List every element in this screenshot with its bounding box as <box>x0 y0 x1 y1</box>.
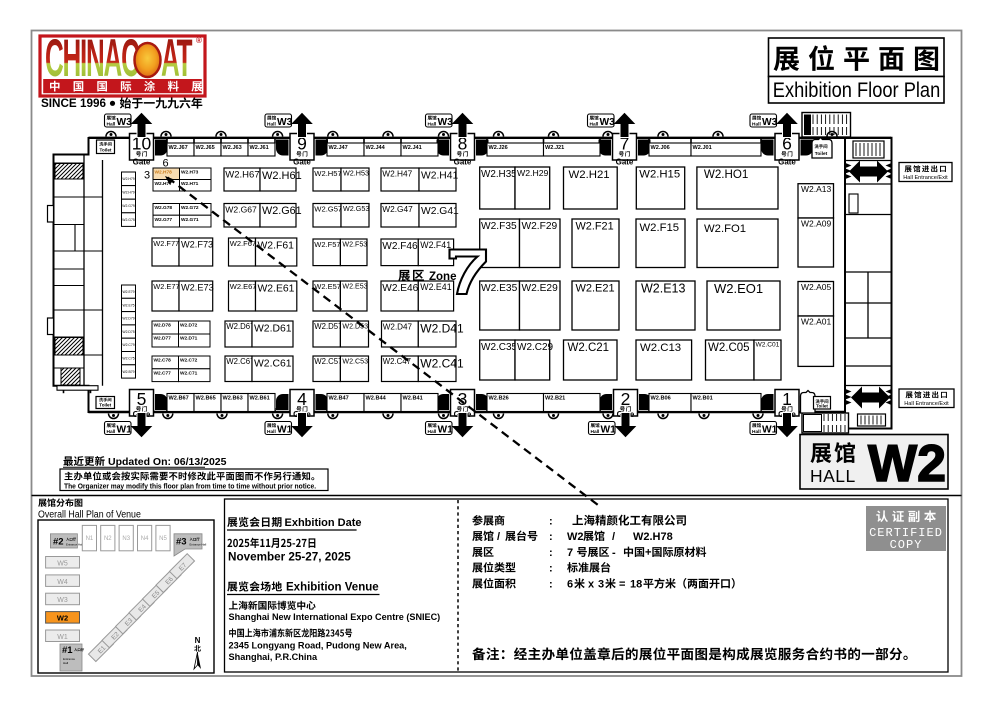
svg-text:Gate: Gate <box>616 158 634 167</box>
svg-text:W2.J63: W2.J63 <box>223 145 242 151</box>
svg-text:W2.H73: W2.H73 <box>181 170 199 176</box>
svg-text:N1: N1 <box>86 536 94 542</box>
svg-text:W2.B61: W2.B61 <box>250 395 270 401</box>
svg-text:W2.E61: W2.E61 <box>258 283 295 294</box>
svg-text:/: / <box>497 531 500 543</box>
svg-text:W2.C78: W2.C78 <box>154 358 172 364</box>
svg-text:November 25-27, 2025: November 25-27, 2025 <box>228 551 351 564</box>
svg-text:W2.F35: W2.F35 <box>481 221 517 232</box>
svg-text:Hall: Hall <box>591 429 600 435</box>
svg-text:W2.J47: W2.J47 <box>329 145 348 151</box>
svg-text:W2.B79: W2.B79 <box>122 370 134 374</box>
svg-text:Zone: Zone <box>429 271 456 283</box>
svg-text::: : <box>549 531 553 543</box>
svg-text:W2.F57: W2.F57 <box>314 240 340 249</box>
svg-text:W2.G61: W2.G61 <box>262 205 302 217</box>
svg-text:W2.C57: W2.C57 <box>314 357 342 366</box>
svg-text:W2.D78: W2.D78 <box>154 323 172 329</box>
svg-text:W2.E46: W2.E46 <box>382 283 418 294</box>
svg-text:W2.C77: W2.C77 <box>154 370 172 376</box>
svg-text:W2.C79: W2.C79 <box>122 343 134 347</box>
svg-text:W2.H67: W2.H67 <box>225 170 259 181</box>
svg-text:Toilet: Toilet <box>816 404 828 409</box>
svg-text:W2.J41: W2.J41 <box>403 145 422 151</box>
svg-text:W2.J06: W2.J06 <box>651 145 670 151</box>
svg-text:Hall Entrance/Exit: Hall Entrance/Exit <box>903 175 948 181</box>
svg-text:W2.H47: W2.H47 <box>382 169 412 179</box>
svg-text:W2.C41: W2.C41 <box>420 357 464 371</box>
svg-text:W2.B21: W2.B21 <box>545 395 565 401</box>
svg-text:W2.B01: W2.B01 <box>693 395 713 401</box>
svg-text:W2.C75: W2.C75 <box>122 357 134 361</box>
svg-text:W2.F21: W2.F21 <box>576 220 614 232</box>
svg-text:W2.G47: W2.G47 <box>382 204 413 214</box>
svg-text:W1: W1 <box>438 425 454 436</box>
svg-text:W2.F15: W2.F15 <box>640 222 680 234</box>
svg-text:Shanghai New International Exp: Shanghai New International Expo Centre (… <box>229 612 441 622</box>
svg-text:W2.C29: W2.C29 <box>517 342 554 353</box>
svg-text:6: 6 <box>162 158 168 170</box>
svg-text:Toilet: Toilet <box>815 151 828 157</box>
svg-text:W2.HO1: W2.HO1 <box>704 168 748 181</box>
svg-text:W3: W3 <box>117 117 133 128</box>
svg-text:W2.FO1: W2.FO1 <box>704 223 746 235</box>
svg-text:W2.G77: W2.G77 <box>155 217 173 223</box>
svg-text:W2: W2 <box>567 531 584 543</box>
svg-text:-: - <box>612 547 616 559</box>
svg-text:COPY: COPY <box>890 538 923 552</box>
svg-text:W5: W5 <box>57 561 68 568</box>
svg-text:W2.D53: W2.D53 <box>342 323 368 331</box>
svg-text:N5: N5 <box>159 536 167 542</box>
svg-text:W2.A13: W2.A13 <box>801 184 832 194</box>
svg-text:W2.G79: W2.G79 <box>122 204 135 208</box>
svg-text:W2.EO1: W2.EO1 <box>714 281 763 296</box>
svg-text:W2.D67: W2.D67 <box>226 322 254 331</box>
svg-text::: : <box>549 516 553 528</box>
svg-text:W2.G78: W2.G78 <box>155 205 173 211</box>
svg-text:Hall: Hall <box>267 429 276 435</box>
svg-text:W1: W1 <box>762 425 778 436</box>
svg-text:Hall: Hall <box>428 122 437 128</box>
svg-text:W2: W2 <box>868 435 946 493</box>
svg-text:W2.F46: W2.F46 <box>382 241 418 252</box>
svg-text:W2.H78: W2.H78 <box>155 170 173 176</box>
svg-text:AT: AT <box>161 28 193 88</box>
svg-text:CHINAC: CHINAC <box>45 28 139 88</box>
svg-text:W2.B67: W2.B67 <box>169 395 189 401</box>
svg-text:W2.D72: W2.D72 <box>180 323 198 329</box>
svg-text:Entrance Hall: Entrance Hall <box>190 543 207 547</box>
svg-text:2: 2 <box>621 389 631 409</box>
svg-text:x: x <box>588 579 595 591</box>
svg-text:W2.B63: W2.B63 <box>223 395 243 401</box>
svg-text:18: 18 <box>630 579 642 591</box>
svg-text:W2.D57: W2.D57 <box>314 322 342 331</box>
svg-text:®: ® <box>196 36 202 45</box>
svg-text:W2.J26: W2.J26 <box>489 145 508 151</box>
svg-text:W2.G67: W2.G67 <box>225 204 257 214</box>
svg-text:Toilet: Toilet <box>99 402 111 407</box>
svg-text:W2.C05: W2.C05 <box>708 342 750 354</box>
svg-text:W2.H57: W2.H57 <box>314 169 341 178</box>
svg-text:W2.C72: W2.C72 <box>180 358 198 364</box>
svg-text:N3: N3 <box>122 536 130 542</box>
svg-text:Hall: Hall <box>752 122 761 128</box>
svg-text:W2.J67: W2.J67 <box>169 145 188 151</box>
svg-text::: : <box>549 563 553 575</box>
svg-text:W2.G57: W2.G57 <box>314 204 342 213</box>
svg-text:W2.D79: W2.D79 <box>122 317 134 321</box>
svg-text:W2.E53: W2.E53 <box>342 283 367 291</box>
svg-text:W2.E79: W2.E79 <box>122 290 134 294</box>
svg-text:N2: N2 <box>104 536 112 542</box>
svg-text:Hall: Hall <box>590 122 599 128</box>
svg-text:W2.H41: W2.H41 <box>421 170 458 181</box>
svg-text:W2.A09: W2.A09 <box>801 218 832 228</box>
svg-text:Toilet: Toilet <box>100 147 112 152</box>
svg-text:W2.E57: W2.E57 <box>314 282 341 291</box>
svg-text:Hall: Hall <box>63 661 69 665</box>
svg-text:W2.H78: W2.H78 <box>633 531 673 543</box>
svg-text:W2.J01: W2.J01 <box>693 145 712 151</box>
svg-text:W2.D77: W2.D77 <box>154 336 172 342</box>
svg-text:6: 6 <box>567 579 573 591</box>
svg-text:W2.J21: W2.J21 <box>545 145 564 151</box>
svg-text:2345 Longyang Road, Pudong New: 2345 Longyang Road, Pudong New Area, <box>229 641 407 651</box>
svg-text:W2.E35: W2.E35 <box>481 283 518 294</box>
svg-text:W2.C35: W2.C35 <box>481 342 518 353</box>
svg-text::: : <box>549 547 553 559</box>
svg-text:W2.E77: W2.E77 <box>153 282 179 291</box>
svg-text:W2.F41: W2.F41 <box>420 240 451 250</box>
svg-text:W2.H79: W2.H79 <box>122 177 134 181</box>
svg-text:W2.B41: W2.B41 <box>403 395 423 401</box>
svg-text:Gate: Gate <box>778 158 796 167</box>
svg-text:Exhibition Venue: Exhibition Venue <box>286 582 379 594</box>
svg-text:N4: N4 <box>141 536 149 542</box>
svg-text:Exhibition Floor Plan: Exhibition Floor Plan <box>773 79 940 102</box>
svg-text:W2.D61: W2.D61 <box>254 323 292 334</box>
svg-text:W2.C21: W2.C21 <box>568 342 610 354</box>
svg-text:Hall: Hall <box>428 429 437 435</box>
svg-text:W2.E13: W2.E13 <box>641 282 686 296</box>
svg-text:W2.C53: W2.C53 <box>342 358 368 366</box>
svg-text:W2.C67: W2.C67 <box>226 357 254 366</box>
svg-text:Shanghai, P.R.China: Shanghai, P.R.China <box>229 652 319 662</box>
svg-text:W2.J61: W2.J61 <box>250 145 269 151</box>
svg-text:W2.G75: W2.G75 <box>122 218 135 222</box>
svg-text:W2: W2 <box>57 614 68 623</box>
svg-text:W2.D47: W2.D47 <box>383 322 413 331</box>
svg-text:W2.G53: W2.G53 <box>343 204 369 213</box>
svg-text:Hall: Hall <box>752 429 761 435</box>
svg-text:The Organizer may modify this: The Organizer may modify this floor plan… <box>64 483 316 490</box>
svg-text:=: = <box>619 579 625 591</box>
svg-text:W2.H79: W2.H79 <box>122 191 134 195</box>
svg-text:#1: #1 <box>62 645 73 656</box>
svg-text:W2.B26: W2.B26 <box>489 395 509 401</box>
svg-text:W2.F77: W2.F77 <box>153 239 179 248</box>
svg-text:W3: W3 <box>57 597 68 604</box>
svg-text:Hall Entrance/Exit: Hall Entrance/Exit <box>904 401 949 407</box>
svg-text:W2.G41: W2.G41 <box>421 206 459 217</box>
svg-text:W2.B44: W2.B44 <box>366 395 387 401</box>
svg-text:#2: #2 <box>53 537 64 548</box>
svg-text:Gate: Gate <box>133 158 151 167</box>
svg-text:W2.B65: W2.B65 <box>196 395 216 401</box>
svg-text:Gate: Gate <box>454 158 472 167</box>
svg-text:W2.F29: W2.F29 <box>522 221 558 232</box>
svg-text:W2.E67: W2.E67 <box>230 282 257 291</box>
svg-text:W2.E73: W2.E73 <box>181 282 214 292</box>
svg-text:W2.H53: W2.H53 <box>343 169 369 178</box>
svg-text:W2.F73: W2.F73 <box>181 239 213 249</box>
svg-text:Hall: Hall <box>267 122 276 128</box>
svg-text:HALL: HALL <box>810 466 856 486</box>
svg-text:W2.B06: W2.B06 <box>651 395 671 401</box>
svg-text:W2.H29: W2.H29 <box>517 168 549 178</box>
svg-text:W3: W3 <box>277 117 293 128</box>
svg-text:W2.H61: W2.H61 <box>262 170 302 182</box>
svg-text:Updated On: 06/13/2025: Updated On: 06/13/2025 <box>108 456 227 468</box>
svg-text:#3: #3 <box>176 537 187 548</box>
svg-text:W2.E75: W2.E75 <box>122 303 134 307</box>
svg-text:1: 1 <box>782 389 792 409</box>
svg-text:W2.D41: W2.D41 <box>420 322 464 336</box>
svg-text:W4: W4 <box>57 579 68 586</box>
svg-text:5: 5 <box>137 389 147 409</box>
svg-text:/: / <box>612 531 615 543</box>
svg-text:W2.J65: W2.J65 <box>196 145 215 151</box>
svg-text:W2.F53: W2.F53 <box>342 241 367 249</box>
svg-text:W3: W3 <box>762 117 778 128</box>
svg-text:W2.H21: W2.H21 <box>569 169 610 181</box>
svg-text:SINCE 1996: SINCE 1996 <box>41 97 106 110</box>
svg-text:N: N <box>195 636 201 645</box>
svg-text:W2.J44: W2.J44 <box>366 145 386 151</box>
svg-text:7: 7 <box>567 547 573 559</box>
svg-text:Overall Hall Plan of Venue: Overall Hall Plan of Venue <box>38 509 141 520</box>
svg-text:W2.D71: W2.D71 <box>180 336 198 342</box>
svg-text:W3: W3 <box>438 117 454 128</box>
svg-text:W1: W1 <box>57 634 68 641</box>
svg-text:W2.G72: W2.G72 <box>181 205 199 211</box>
svg-text:W2.E29: W2.E29 <box>522 283 559 294</box>
svg-text:Exhbition Date: Exhbition Date <box>285 517 362 529</box>
svg-text:3: 3 <box>598 579 604 591</box>
svg-text:4: 4 <box>297 389 307 409</box>
svg-text:W2.G71: W2.G71 <box>181 217 199 223</box>
svg-text::: : <box>549 579 553 591</box>
svg-text:W2.B47: W2.B47 <box>329 395 349 401</box>
svg-text:W1: W1 <box>601 425 617 436</box>
svg-text:W2.F67: W2.F67 <box>230 239 256 248</box>
svg-text:Gate: Gate <box>293 158 311 167</box>
svg-text:W2.H15: W2.H15 <box>639 169 680 181</box>
svg-text:Entrance Hall: Entrance Hall <box>66 543 83 547</box>
svg-text:W2.H35: W2.H35 <box>481 169 517 180</box>
svg-text:W2.H71: W2.H71 <box>181 181 199 187</box>
svg-text:W2.D75: W2.D75 <box>122 330 134 334</box>
svg-text:W2.C13: W2.C13 <box>640 342 681 354</box>
svg-text:3: 3 <box>144 170 150 182</box>
svg-text:W3: W3 <box>600 117 616 128</box>
svg-text:W2.A01: W2.A01 <box>801 316 832 326</box>
svg-text:Hall: Hall <box>107 429 116 435</box>
svg-text:W1: W1 <box>277 425 293 436</box>
svg-text:W2.C01: W2.C01 <box>756 342 780 349</box>
svg-text:W2.A05: W2.A05 <box>801 282 832 292</box>
svg-text:Hall: Hall <box>107 122 116 128</box>
svg-text:W1: W1 <box>117 425 133 436</box>
svg-text:W2.C71: W2.C71 <box>180 370 198 376</box>
svg-text:W2.C61: W2.C61 <box>254 358 292 369</box>
svg-text:W2.E41: W2.E41 <box>420 282 451 292</box>
svg-text:W2.E21: W2.E21 <box>576 282 615 294</box>
